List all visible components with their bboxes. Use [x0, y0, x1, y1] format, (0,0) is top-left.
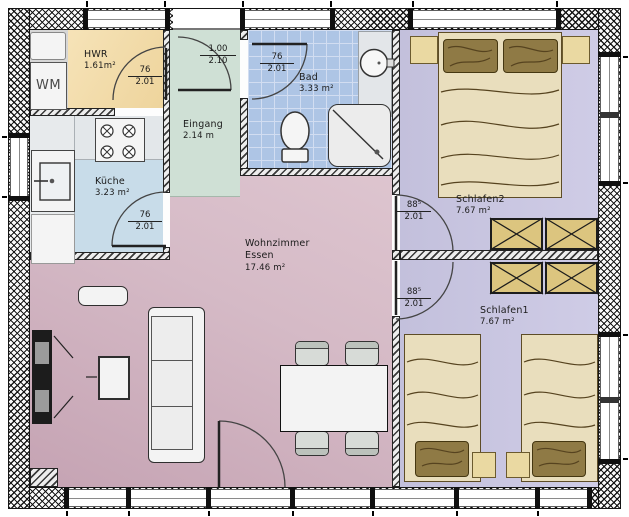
dimension-tick	[292, 511, 294, 516]
wall-post	[330, 8, 335, 30]
dimension-tick	[623, 182, 628, 184]
dimension-tick	[623, 56, 628, 58]
shower	[328, 104, 391, 167]
dining-chair	[345, 341, 379, 366]
bad-room-label: Bad 3.33 m²	[299, 72, 334, 95]
wall-post	[598, 52, 621, 57]
sofa-cushion-divider	[151, 360, 193, 361]
window-mullion	[600, 112, 619, 118]
pillow	[503, 39, 558, 73]
window-right-schlafen2	[600, 56, 619, 183]
wall-bad-left-lower	[240, 98, 248, 172]
kueche-room-label: Küche 3.23 m²	[95, 176, 130, 199]
wardrobe	[490, 262, 543, 294]
window-top-hwr	[88, 10, 165, 28]
schlafen2-room-label: Schlafen2 7.67 m²	[456, 194, 505, 217]
dining-table	[280, 365, 388, 432]
schlafen1-room-area: 7.67 m²	[480, 317, 529, 328]
entry-door-dimension: 1.00 2.10	[200, 44, 236, 66]
window-top-bad	[245, 10, 330, 28]
tv-screen-segment	[35, 342, 49, 364]
shelf-unit	[30, 32, 66, 60]
wohnzimmer-room-name2: Essen	[245, 250, 310, 262]
sofa-cushions	[151, 316, 193, 450]
wall-between-bedrooms	[400, 250, 598, 260]
schlafen1-room-name: Schlafen1	[480, 305, 529, 317]
dimension-tick	[456, 511, 458, 516]
pillow	[532, 441, 586, 477]
wall-post	[556, 8, 561, 30]
door-opening-kueche	[163, 193, 170, 247]
wardrobe	[545, 262, 598, 294]
wall-post	[587, 487, 592, 509]
window-mullion	[454, 487, 459, 509]
chair-backrest	[296, 448, 328, 455]
wall-post	[598, 181, 621, 186]
dining-chair	[295, 431, 329, 456]
chair-backrest	[346, 342, 378, 349]
wall-corner-block	[30, 468, 58, 487]
schlafen1-room-label: Schlafen1 7.67 m²	[480, 305, 529, 328]
pillow	[415, 441, 469, 477]
nightstand	[562, 36, 590, 64]
dimension-tick	[86, 1, 88, 7]
wall-post	[598, 332, 621, 337]
dimension-tick	[330, 1, 332, 7]
wohnzimmer-room-area: 17.46 m²	[245, 263, 310, 274]
window-mullion	[370, 487, 375, 509]
dimension-tick	[412, 1, 414, 7]
wall-post	[408, 8, 413, 30]
dimension-tick	[164, 1, 166, 7]
dimension-tick	[372, 511, 374, 516]
schlafen2-room-name: Schlafen2	[456, 194, 505, 206]
dining-chair	[345, 431, 379, 456]
wohnzimmer-room-label: Wohnzimmer Essen 17.46 m²	[245, 238, 310, 274]
kueche-door-dimension: 76 2.01	[128, 210, 162, 232]
wall-post	[8, 133, 30, 138]
bad-door-dimension: 76 2.01	[260, 52, 294, 74]
kueche-room-name: Küche	[95, 176, 130, 188]
window-mullion	[600, 397, 619, 403]
coffee-table	[98, 356, 130, 400]
wall-post	[83, 8, 88, 30]
nightstand	[472, 452, 496, 478]
wohnzimmer-room-name1: Wohnzimmer	[245, 238, 310, 250]
schlafen2-door-dimension: 88⁵ 2.01	[397, 200, 431, 222]
wall-post	[240, 8, 245, 30]
kitchen-sink-unit	[31, 150, 75, 212]
dimension-tick	[128, 511, 130, 516]
wall-central-lower	[392, 316, 400, 487]
dishwasher	[31, 214, 75, 264]
window-mullion	[290, 487, 295, 509]
door-opening-hwr	[115, 108, 163, 116]
eingang-room-name: Eingang	[183, 119, 223, 131]
dimension-tick	[537, 511, 539, 516]
wardrobe	[490, 218, 543, 250]
window-left-kueche	[10, 137, 28, 197]
hwr-door-dimension: 76 2.01	[128, 65, 162, 87]
window-bottom-band	[66, 489, 590, 507]
hwr-room-label: HWR 1.61m²	[84, 49, 116, 72]
wall-central-mid	[392, 250, 400, 260]
window-mullion	[126, 487, 131, 509]
wall-post	[598, 459, 621, 464]
wardrobe	[545, 218, 598, 250]
door-opening-bad	[240, 40, 248, 98]
dimension-tick	[242, 1, 244, 7]
sofa-cushion-divider	[151, 406, 193, 407]
wall-post	[8, 196, 30, 201]
eingang-room-area: 2.14 m	[183, 131, 223, 142]
wall-bad-left-upper	[240, 30, 248, 40]
dimension-tick	[2, 136, 7, 138]
nightstand	[410, 36, 438, 64]
door-opening-entry	[173, 9, 243, 30]
window-mullion	[206, 487, 211, 509]
wall-post	[64, 487, 69, 509]
dimension-tick	[623, 334, 628, 336]
dimension-tick	[2, 196, 7, 198]
floor-plan: HWR 1.61m² 76 2.01 WM 1.00 2.10 Eingang …	[0, 0, 629, 517]
hwr-room-area: 1.61m²	[84, 61, 116, 72]
wall-bad-bottom	[240, 168, 400, 176]
bad-room-area: 3.33 m²	[299, 84, 334, 95]
wall-post	[165, 8, 170, 30]
stove	[95, 118, 145, 162]
dimension-tick	[208, 511, 210, 516]
nightstand	[506, 452, 530, 478]
wall-kueche-right-upper	[163, 30, 170, 193]
dimension-tick	[556, 1, 558, 7]
wall-central-upper	[392, 30, 400, 195]
window-top-schlafen2	[413, 10, 556, 28]
schlafen1-door-dimension: 88⁵ 2.01	[397, 287, 431, 309]
chair-backrest	[346, 448, 378, 455]
tv-screen-segment	[35, 390, 49, 412]
bad-room-name: Bad	[299, 72, 334, 84]
dimension-tick	[623, 458, 628, 460]
dining-chair	[295, 341, 329, 366]
dimension-tick	[66, 511, 68, 516]
window-mullion	[535, 487, 540, 509]
schlafen2-room-area: 7.67 m²	[456, 206, 505, 217]
washing-machine-label: WM	[36, 78, 61, 93]
hwr-room-name: HWR	[84, 49, 116, 61]
eingang-room-label: Eingang 2.14 m	[183, 119, 223, 142]
kueche-room-area: 3.23 m²	[95, 188, 130, 199]
outer-wall-left	[8, 8, 30, 509]
side-table	[78, 286, 128, 306]
chair-backrest	[296, 342, 328, 349]
pillow	[443, 39, 498, 73]
